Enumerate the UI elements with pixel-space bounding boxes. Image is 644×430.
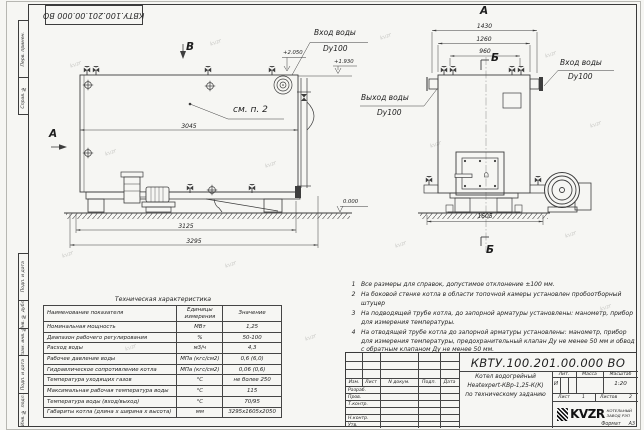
view-label-a-side: А [49, 128, 57, 140]
table-cell: °С [177, 375, 223, 386]
note-item: 3 На подводящей трубе котла, до запорной… [346, 310, 636, 327]
rev-col-docnum: N докум. [388, 380, 409, 385]
table-cell: 0,6 (6,0) [223, 354, 282, 365]
door-latch-icon [485, 173, 489, 177]
table-cell: 4,3 [223, 343, 282, 354]
valve-icon [426, 177, 432, 186]
rev-col-date: Дата [444, 380, 456, 385]
table-header-row: Наименование показателя Единицы измерени… [44, 306, 282, 322]
inlet-water-dn: Dy100 [323, 44, 348, 53]
fitting-cross-icon [205, 81, 215, 91]
company-logo: KVZR [570, 407, 605, 421]
table-cell: Диапазон рабочего регулирования [44, 333, 177, 344]
inlet-water-right-label: Вход воды [560, 58, 602, 67]
dimensions-side [70, 130, 318, 248]
base-skid [86, 192, 300, 199]
dim-3295: 3295 [186, 238, 201, 245]
valve-icon [441, 67, 447, 76]
access-door [455, 152, 504, 195]
table-header-cell: Наименование показателя [44, 306, 177, 322]
valve-icon [518, 67, 524, 76]
table-cell: м3/ч [177, 343, 223, 354]
table-cell: Максимальная рабочая температура воды [44, 386, 177, 397]
elevation-marks [282, 58, 368, 213]
sheets-value: 2 [629, 395, 632, 400]
table-row: Рабочее давление воды МПа (кгс/см2) 0,6 … [44, 354, 282, 365]
product-name-line: Heatexpert-КВр-1,25-К(К) [459, 382, 552, 391]
valve-icon [450, 67, 456, 76]
note-item: 1 Все размеры для справок, допустимое от… [346, 281, 636, 290]
table-header-cell: Единицы измерения [177, 306, 223, 322]
inlet-water-label: Вход воды [314, 28, 356, 37]
inlet-water-right-dn: Dy100 [568, 72, 593, 81]
inspection-panel [503, 93, 521, 108]
section-label-b-top: Б [491, 52, 499, 64]
section-label-b-bottom: Б [486, 244, 494, 256]
table-cell: °С [177, 386, 223, 397]
table-cell: 70/95 [223, 397, 282, 408]
fitting-cross-icon [83, 80, 93, 90]
table-row: Расход воды м3/ч 4,3 [44, 343, 282, 354]
dim-1260: 1260 [476, 36, 491, 43]
fitting-cross-icon [83, 148, 93, 158]
sheet-value: 1 [582, 395, 585, 400]
boiler-shell [80, 75, 298, 192]
see-note-ref: см. п. 2 [233, 105, 268, 115]
note-text: Все размеры для справок, допустимое откл… [361, 281, 636, 290]
table-cell: Рабочее давление воды [44, 354, 177, 365]
rev-col-list: Лист [365, 380, 377, 385]
table-cell: МПа (кгс/см2) [177, 365, 223, 376]
table-cell: Гидравлическое сопротивление котла [44, 365, 177, 376]
format-label: Формат [601, 422, 620, 427]
dim-3045: 3045 [181, 123, 196, 130]
note-number: 1 [346, 281, 361, 290]
table-cell: 3295х1605х2050 [223, 408, 282, 419]
table-row: Гидравлическое сопротивление котла МПа (… [44, 365, 282, 376]
valve-icon [509, 67, 515, 76]
blower-fan [545, 173, 592, 213]
spec-table-title: Техническая характеристика [43, 296, 283, 303]
outlet-piping [297, 78, 314, 188]
table-row: Температура воды (вход/выход) °С 70/95 [44, 397, 282, 408]
table-row: Габариты котла (длина х ширина х высота)… [44, 408, 282, 419]
note-text: На боковой стенке котла в области топочн… [361, 291, 636, 308]
table-cell: Номинальная мощность [44, 322, 177, 333]
product-name-line: Котел водогрейный [459, 373, 552, 382]
role-ncontrol: Н.контр. [348, 416, 369, 421]
table-row: Номинальная мощность МВт 1,25 [44, 322, 282, 333]
elevation-inlet: +2.050 [283, 50, 303, 56]
elevation-zero: 0.000 [343, 199, 358, 205]
drawing-sheet: { "doc_number": "КВТУ.100.201.00.000 ВО"… [0, 0, 644, 430]
table-cell: °С [177, 397, 223, 408]
table-cell: мм [177, 408, 223, 419]
note-item: 2 На боковой стенке котла в области топо… [346, 291, 636, 308]
sheet-label: Лист [558, 395, 570, 400]
note-number: 2 [346, 291, 361, 308]
note-text: На подводящей трубе котла, до запорной а… [361, 310, 636, 327]
fitting-cross-icon [207, 185, 217, 195]
table-row: Температура уходящих газов °С не более 2… [44, 375, 282, 386]
valve-icon [93, 67, 99, 76]
title-block: Изм. Лист N докум. Подп. Дата Разраб. Пр… [345, 352, 637, 427]
mass-header: Масса [582, 372, 597, 377]
table-row: Диапазон рабочего регулирования % 50-100 [44, 333, 282, 344]
company-name: КОТЕЛЬНЫЙ ЗАВОД РЭП [607, 409, 632, 419]
table-cell: МПа (кгс/см2) [177, 354, 223, 365]
role-approved: Утв. [348, 423, 358, 428]
view-label-b: В [186, 41, 194, 53]
dim-3125: 3125 [178, 223, 193, 230]
table-cell: Температура уходящих газов [44, 375, 177, 386]
table-cell: 0,06 (0,6) [223, 365, 282, 376]
company-name-line: ЗАВОД РЭП [607, 414, 632, 419]
role-designed: Разраб. [348, 388, 366, 393]
table-header-cell: Значение [223, 306, 282, 322]
table-row: Максимальная рабочая температура воды °С… [44, 386, 282, 397]
format-value: А3 [629, 422, 635, 427]
table-cell: Габариты котла (длина х ширина х высота) [44, 408, 177, 419]
table-cell: не более 250 [223, 375, 282, 386]
door-handle [455, 174, 472, 178]
table-cell: % [177, 333, 223, 344]
elevation-top: +1.930 [334, 59, 354, 65]
view-arrow-a [59, 144, 67, 149]
table-cell: Расход воды [44, 343, 177, 354]
format-note: Формат А3 [538, 422, 635, 427]
product-name: Котел водогрейный Heatexpert-КВр-1,25-К(… [459, 373, 552, 400]
spec-table: Техническая характеристика Наименование … [43, 296, 283, 418]
valve-icon [269, 67, 275, 76]
table-cell: 115 [223, 386, 282, 397]
product-name-line: по техническому заданию [459, 391, 552, 400]
valve-icon [84, 67, 90, 76]
rev-col-sign: Подп. [422, 380, 436, 385]
table-cell: МВт [177, 322, 223, 333]
outlet-water-label: Выход воды [361, 93, 409, 102]
scale-header: Масштаб [610, 372, 632, 377]
dim-1430: 1430 [477, 23, 492, 30]
sheets-label: Листов [600, 395, 617, 400]
table-cell: 50-100 [223, 333, 282, 344]
table-cell: 1,25 [223, 322, 282, 333]
lit-header: Лит. [559, 372, 570, 377]
valve-icon [205, 67, 211, 76]
table-cell: Температура воды (вход/выход) [44, 397, 177, 408]
inlet-flange [274, 76, 292, 94]
valve-icon [535, 177, 541, 186]
logo-stripes-icon [557, 408, 568, 421]
spec-table-grid: Наименование показателя Единицы измерени… [43, 305, 282, 418]
note-number: 3 [346, 310, 361, 327]
lit-value: И [554, 381, 558, 387]
dim-1605: 1605 [477, 213, 492, 220]
role-checked: Пров. [348, 395, 361, 400]
view-label-a-front: А [480, 5, 488, 17]
role-tcontrol: Т.контр. [348, 402, 368, 407]
rev-col-izm: Изм. [349, 380, 360, 385]
scale-value: 1:20 [614, 381, 627, 387]
document-designation: КВТУ.100.201.00.000 ВО [471, 356, 626, 370]
notes-list: 1 Все размеры для справок, допустимое от… [346, 281, 636, 357]
outlet-water-dn: Dy100 [377, 108, 402, 117]
pump-motor-assembly [121, 172, 175, 212]
front-base [446, 193, 522, 212]
dim-960: 960 [479, 48, 490, 55]
